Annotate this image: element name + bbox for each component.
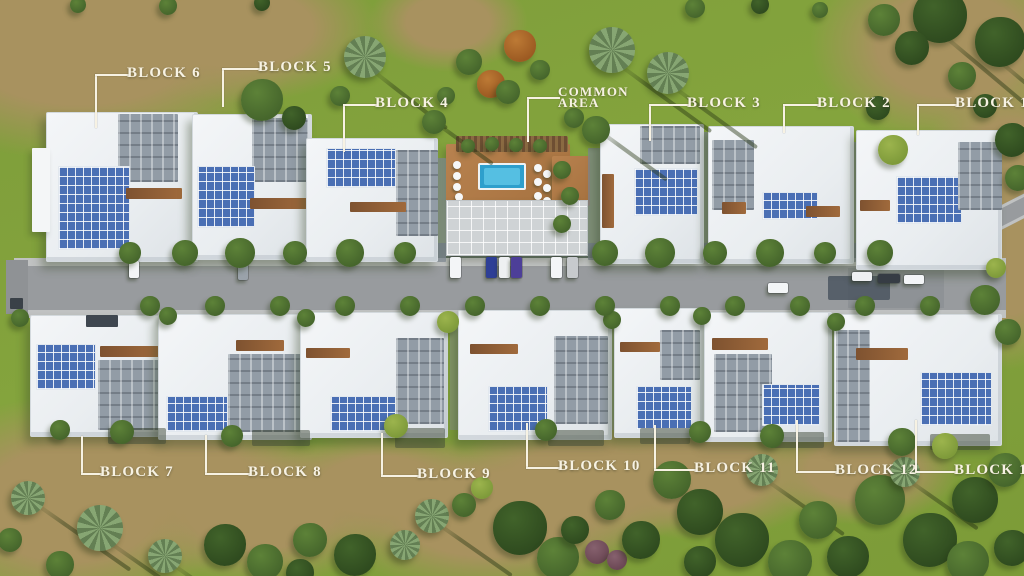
tree bbox=[855, 296, 875, 316]
tree bbox=[241, 79, 283, 121]
leader-line bbox=[95, 74, 97, 128]
label-block-4: BLOCK 4 bbox=[375, 96, 449, 111]
tree bbox=[465, 296, 485, 316]
tree bbox=[812, 2, 828, 18]
car bbox=[567, 257, 578, 278]
building-block-6-detail bbox=[32, 148, 50, 232]
tree bbox=[814, 242, 836, 264]
tree bbox=[225, 238, 255, 268]
tree bbox=[11, 309, 29, 327]
tree bbox=[986, 258, 1006, 278]
tree bbox=[867, 240, 893, 266]
building-block-7-detail bbox=[36, 344, 96, 390]
building-block-4-detail bbox=[326, 148, 396, 188]
tree bbox=[622, 521, 660, 559]
tree bbox=[1005, 165, 1024, 191]
building-block-13-detail bbox=[920, 372, 992, 426]
tree bbox=[760, 424, 784, 448]
tree bbox=[685, 0, 705, 18]
tree bbox=[334, 534, 376, 576]
tree bbox=[607, 550, 627, 570]
building-block-2-detail bbox=[806, 206, 840, 217]
leader-line bbox=[783, 104, 785, 133]
tree bbox=[684, 546, 716, 576]
tree bbox=[530, 296, 550, 316]
driveway bbox=[640, 428, 690, 444]
dirt-patch bbox=[368, 0, 528, 72]
pool-umbrella bbox=[453, 161, 461, 169]
car bbox=[486, 257, 497, 278]
tree bbox=[286, 559, 314, 576]
leader-line bbox=[654, 469, 696, 471]
tree bbox=[948, 62, 976, 90]
car bbox=[852, 272, 872, 281]
leader-line bbox=[649, 104, 651, 141]
tree bbox=[204, 524, 246, 566]
leader-line bbox=[796, 420, 798, 473]
palm-tree bbox=[415, 499, 449, 533]
pool-umbrella bbox=[453, 172, 461, 180]
tree bbox=[452, 493, 476, 517]
tree bbox=[509, 138, 523, 152]
leader-line bbox=[205, 435, 207, 475]
leader-line bbox=[222, 68, 224, 107]
building-block-8-detail bbox=[236, 340, 284, 351]
building-block-11-detail bbox=[660, 330, 700, 380]
tree bbox=[703, 241, 727, 265]
tree bbox=[920, 296, 940, 316]
tree bbox=[247, 544, 283, 576]
building-block-4-detail bbox=[396, 150, 438, 236]
car bbox=[878, 274, 900, 283]
tree bbox=[582, 116, 610, 144]
building-block-3-detail bbox=[634, 168, 698, 216]
tree bbox=[496, 80, 520, 104]
tree bbox=[827, 536, 869, 576]
tree bbox=[689, 421, 711, 443]
building-block-1-detail bbox=[958, 142, 1002, 210]
tree bbox=[553, 215, 571, 233]
leader-line bbox=[343, 104, 377, 106]
tree bbox=[725, 296, 745, 316]
driveway bbox=[252, 430, 310, 446]
leader-line bbox=[95, 74, 129, 76]
building-block-9-detail bbox=[396, 338, 444, 424]
aerial-site-plan: BLOCK 6 BLOCK 5 BLOCK 4 COMMON AREA BLOC… bbox=[0, 0, 1024, 576]
tree bbox=[799, 501, 837, 539]
tree bbox=[461, 139, 475, 153]
car bbox=[768, 283, 788, 293]
tree bbox=[172, 240, 198, 266]
tree bbox=[485, 137, 499, 151]
label-block-11: BLOCK 11 bbox=[694, 461, 776, 476]
tree bbox=[330, 86, 350, 106]
leader-line bbox=[81, 473, 102, 475]
tree bbox=[878, 135, 908, 165]
tree bbox=[790, 296, 810, 316]
leader-line bbox=[654, 425, 656, 471]
leader-line bbox=[527, 97, 560, 99]
label-block-5: BLOCK 5 bbox=[258, 60, 332, 75]
leader-line bbox=[917, 104, 957, 106]
pool-umbrella bbox=[543, 170, 551, 178]
tree bbox=[995, 123, 1024, 157]
tree bbox=[660, 296, 680, 316]
car bbox=[450, 257, 461, 278]
leader-line bbox=[343, 104, 345, 152]
pool-umbrella bbox=[543, 184, 551, 192]
car bbox=[551, 257, 562, 278]
tree bbox=[970, 285, 1000, 315]
tree bbox=[297, 309, 315, 327]
tree bbox=[533, 139, 547, 153]
label-block-9: BLOCK 9 bbox=[417, 467, 491, 482]
tree bbox=[530, 60, 550, 80]
building-block-1-detail bbox=[860, 200, 890, 211]
tree bbox=[283, 241, 307, 265]
building-block-6-detail bbox=[126, 188, 182, 199]
palm-tree bbox=[344, 36, 386, 78]
building-block-6-detail bbox=[58, 166, 130, 250]
tree bbox=[140, 296, 160, 316]
tree bbox=[693, 307, 711, 325]
building-block-5-detail bbox=[197, 166, 255, 228]
building-block-5-detail bbox=[250, 198, 308, 209]
tree bbox=[994, 530, 1024, 566]
leader-line bbox=[915, 420, 917, 473]
building-block-11-detail bbox=[620, 342, 660, 352]
tree bbox=[553, 161, 571, 179]
tree bbox=[595, 296, 615, 316]
pool-umbrella bbox=[534, 164, 542, 172]
label-block-7: BLOCK 7 bbox=[100, 465, 174, 480]
building-block-13-detail bbox=[836, 330, 870, 442]
dumpster bbox=[10, 298, 23, 309]
car bbox=[904, 275, 924, 284]
car bbox=[511, 257, 522, 278]
tree bbox=[756, 239, 784, 267]
label-block-6: BLOCK 6 bbox=[127, 66, 201, 81]
tree bbox=[751, 0, 769, 14]
pool-umbrella bbox=[534, 192, 542, 200]
palm-tree bbox=[589, 27, 635, 73]
leader-line bbox=[915, 471, 956, 473]
tree bbox=[282, 106, 306, 130]
tree bbox=[947, 541, 989, 576]
label-block-13: BLOCK 13 bbox=[954, 463, 1024, 478]
leader-line bbox=[783, 104, 819, 106]
tree bbox=[535, 419, 557, 441]
tree bbox=[50, 420, 70, 440]
label-common-area: COMMON AREA bbox=[558, 86, 632, 108]
leader-line bbox=[222, 68, 260, 70]
tree bbox=[221, 425, 243, 447]
palm-tree bbox=[390, 530, 420, 560]
label-block-2: BLOCK 2 bbox=[817, 96, 891, 111]
building-block-12-detail bbox=[762, 384, 820, 426]
leader-line bbox=[381, 475, 419, 477]
building-block-9-detail bbox=[306, 348, 350, 358]
building-block-7-detail bbox=[98, 360, 164, 430]
palm-tree bbox=[11, 481, 45, 515]
pool-umbrella bbox=[534, 178, 542, 186]
leader-line bbox=[917, 104, 919, 135]
tree bbox=[715, 513, 769, 567]
tree bbox=[995, 319, 1021, 345]
pool-umbrella bbox=[453, 183, 461, 191]
tree bbox=[677, 489, 723, 535]
building-block-3-detail bbox=[602, 174, 614, 228]
tree bbox=[336, 239, 364, 267]
tree bbox=[335, 296, 355, 316]
tree bbox=[564, 108, 584, 128]
tree bbox=[868, 4, 900, 36]
tree bbox=[645, 238, 675, 268]
building-block-4-detail bbox=[350, 202, 406, 212]
tree bbox=[205, 296, 225, 316]
tree bbox=[46, 551, 74, 576]
building-block-10-detail bbox=[470, 344, 518, 354]
leader-line bbox=[527, 97, 529, 142]
building-block-2-detail bbox=[722, 202, 746, 214]
tree bbox=[952, 477, 998, 523]
tree bbox=[768, 540, 812, 576]
leader-line bbox=[205, 473, 250, 475]
tree bbox=[293, 523, 327, 557]
building-block-11-detail bbox=[636, 386, 692, 430]
building-block-7-detail bbox=[100, 346, 160, 357]
building-block-12-detail bbox=[712, 338, 768, 350]
leader-line bbox=[381, 433, 383, 477]
tree bbox=[585, 540, 609, 564]
tree bbox=[895, 31, 929, 65]
leader-line bbox=[649, 104, 689, 106]
tree bbox=[270, 296, 290, 316]
tree bbox=[504, 30, 536, 62]
building-block-2-detail bbox=[712, 140, 754, 210]
leader-line bbox=[526, 423, 528, 469]
palm-tree bbox=[77, 505, 123, 551]
building-block-8-detail bbox=[166, 396, 228, 432]
leader-line bbox=[526, 467, 560, 469]
palm-tree bbox=[148, 539, 182, 573]
tree bbox=[110, 420, 134, 444]
building-block-1-detail bbox=[896, 176, 962, 224]
tree bbox=[119, 242, 141, 264]
tree bbox=[561, 187, 579, 205]
tree bbox=[888, 428, 916, 456]
tree bbox=[561, 516, 589, 544]
palm-tree bbox=[647, 52, 689, 94]
label-block-1: BLOCK 1 bbox=[955, 96, 1024, 111]
tree bbox=[422, 110, 446, 134]
tree bbox=[400, 296, 420, 316]
building-block-8-detail bbox=[228, 354, 308, 432]
tree bbox=[932, 433, 958, 459]
tree bbox=[394, 242, 416, 264]
tree bbox=[595, 490, 625, 520]
tree bbox=[827, 313, 845, 331]
building-block-13-detail bbox=[856, 348, 908, 360]
tree bbox=[975, 17, 1024, 67]
car bbox=[499, 257, 510, 278]
tree bbox=[159, 307, 177, 325]
tree bbox=[384, 414, 408, 438]
building-block-7-detail bbox=[86, 315, 118, 327]
label-block-8: BLOCK 8 bbox=[248, 465, 322, 480]
tree bbox=[437, 311, 459, 333]
label-block-3: BLOCK 3 bbox=[687, 96, 761, 111]
pool-water bbox=[484, 168, 520, 185]
label-block-10: BLOCK 10 bbox=[558, 459, 641, 474]
label-block-12: BLOCK 12 bbox=[835, 463, 918, 478]
leader-line bbox=[81, 436, 83, 475]
building-block-10-detail bbox=[554, 336, 608, 424]
tree bbox=[592, 240, 618, 266]
leader-line bbox=[796, 471, 837, 473]
tree bbox=[456, 49, 482, 75]
